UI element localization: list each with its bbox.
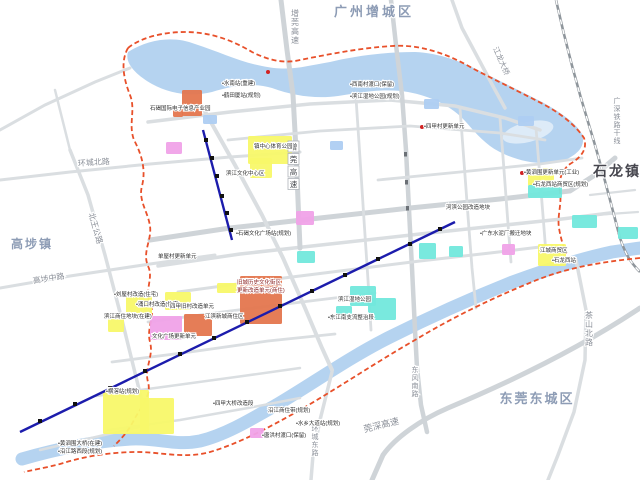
planning-map: 增莞高速环城北路北王公路高埗中路增莞高速江龙大桥广深铁路干线茶山北路东风南路环城… — [0, 0, 640, 480]
poi-label: •四甲村更新单元 — [424, 122, 465, 130]
metro-station — [204, 138, 208, 142]
road-label: 茶山北路 — [585, 310, 593, 347]
expressway-shield-char: 莞 — [290, 154, 298, 164]
metro-station — [229, 228, 233, 232]
poi-label: 滨江文化中心区 — [226, 169, 265, 177]
metro-station — [310, 289, 314, 293]
poi-label: •鹤田厦站(规划) — [222, 91, 261, 99]
road-label: 增莞高速 — [291, 8, 299, 45]
land-parcel — [502, 244, 515, 255]
poi-label: •沿江路西段(规划) — [58, 447, 102, 455]
poi-label: •滨江湿地公园(规划) — [350, 92, 400, 100]
poi-label: •石龙西站 — [552, 256, 576, 264]
bus-stop-tick — [406, 206, 409, 211]
poi-label: 更新改造单元(商住) — [237, 286, 285, 294]
poi-label: •黄泗围更新单元(工业) — [524, 168, 579, 176]
region-label-gaobu: 高埗镇 — [11, 236, 53, 251]
expressway-shield-char: 速 — [290, 180, 298, 189]
land-parcel — [182, 90, 202, 116]
poi-label: •广东水泥厂搬迁地块 — [480, 229, 532, 237]
poi-label: •四甲大桥改造段 — [213, 399, 254, 407]
expressway-shield-char: 高 — [290, 167, 298, 177]
road-label: 东风南路 — [412, 365, 419, 398]
road-label: 莞深高速 — [362, 415, 400, 434]
poi-marker — [266, 70, 270, 74]
poi-label: 石碣国际电子信息产业园 — [150, 104, 211, 112]
land-parcel — [166, 142, 182, 154]
metro-station — [343, 273, 347, 277]
road — [0, 68, 130, 130]
road — [55, 90, 70, 150]
metro-station — [212, 336, 216, 340]
land-parcel — [618, 227, 638, 239]
poi-label: 文化广场更新单元 — [152, 332, 197, 340]
poi-label: 沿江商住带(规划) — [268, 406, 310, 414]
metro-station — [376, 257, 380, 261]
pond — [203, 115, 217, 124]
pond — [518, 116, 534, 126]
road — [590, 190, 635, 195]
metro-station — [73, 402, 77, 406]
road-label: 广深铁路干线 — [614, 96, 621, 145]
metro-station — [220, 194, 224, 198]
land-parcel — [140, 398, 174, 434]
land-parcel — [217, 283, 237, 293]
bus-stop-tick — [404, 152, 407, 157]
metro-station — [245, 320, 249, 324]
poi-label: 滨江商住地块(在建) — [104, 312, 152, 320]
poi-label: •石龙西站商贸区(规划) — [533, 180, 588, 188]
land-parcel — [572, 215, 597, 228]
poi-label: •唐洪村渡口(保留) — [262, 431, 306, 439]
region-label-shilong: 石龙镇 — [592, 163, 640, 179]
map-canvas: 增莞高速环城北路北王公路高埗中路增莞高速江龙大桥广深铁路干线茶山北路东风南路环城… — [0, 0, 640, 480]
metro-station — [215, 174, 219, 178]
metro-line — [203, 130, 232, 240]
region-label-guangzhou-zengcheng: 广州增城区 — [334, 4, 414, 19]
poi-label: •石碣文化广场站(规划) — [236, 229, 291, 237]
land-parcel — [296, 211, 314, 225]
poi-label: •横滘站(规划) — [106, 387, 139, 395]
metro-station — [178, 352, 182, 356]
poi-label: 旧城历史文化街区 — [237, 278, 282, 286]
metro-station — [210, 156, 214, 160]
metro-station — [438, 227, 442, 231]
poi-label: 四甲旧村改造单元 — [170, 302, 215, 310]
bus-stop-tick — [405, 180, 408, 185]
poi-label: 河滨公园改造地块 — [446, 203, 491, 211]
road — [548, 260, 586, 480]
land-parcel — [449, 246, 463, 257]
metro-station — [38, 419, 42, 423]
town-boundary — [114, 48, 152, 446]
road-label: 江龙大桥 — [491, 45, 513, 77]
road-label: 高埗中路 — [32, 271, 65, 286]
land-parcel — [297, 251, 315, 263]
poi-label: 单屋村更新单元 — [158, 252, 197, 260]
poi-label: •刘屋村改造(住宅) — [114, 290, 158, 298]
metro-station — [278, 304, 282, 308]
metro-station — [408, 242, 412, 246]
poi-label: •黄泗围大桥(在建) — [58, 439, 102, 447]
road — [70, 150, 148, 425]
poi-label: •西南村渡口(保留) — [350, 80, 394, 88]
poi-label: •东江南支流整治段 — [328, 313, 374, 321]
poi-label: 镇中心体育公园 — [254, 142, 293, 150]
poi-label: 滨江湿地公园 — [338, 295, 372, 303]
poi-label: •水乡大道站(规划) — [296, 419, 340, 427]
road-label: 北王公路 — [87, 211, 105, 245]
pond — [424, 99, 439, 109]
poi-label: •水南站(重建) — [222, 79, 255, 87]
land-parcel — [419, 243, 436, 259]
metro-station — [143, 369, 147, 373]
poi-label: 江滨新城商住区 — [205, 312, 244, 320]
road — [112, 334, 335, 362]
metro-station — [225, 211, 229, 215]
region-label-dongguan-dongcheng: 东莞东城区 — [499, 391, 574, 406]
poi-label: 江城商贸区 — [540, 246, 568, 254]
pond — [330, 141, 343, 150]
road-label: 环城北路 — [77, 156, 110, 168]
